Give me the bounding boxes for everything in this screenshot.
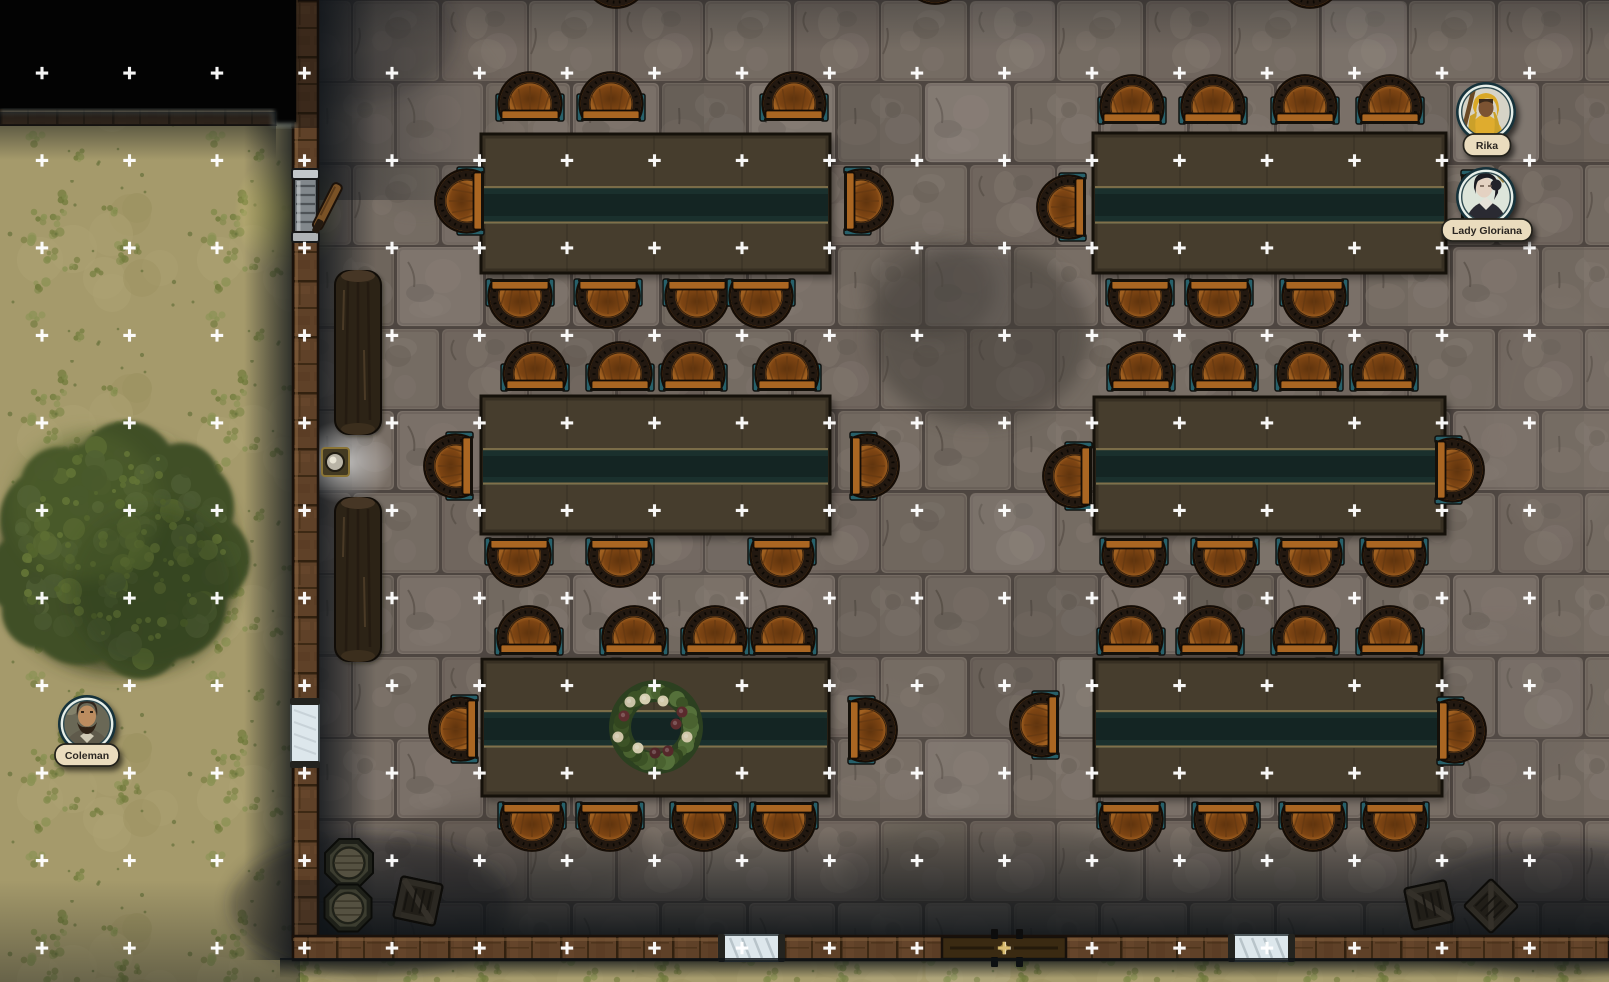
- svg-text:Coleman: Coleman: [65, 750, 109, 762]
- svg-text:Rika: Rika: [1476, 140, 1498, 152]
- svg-text:Lady Gloriana: Lady Gloriana: [1452, 225, 1522, 237]
